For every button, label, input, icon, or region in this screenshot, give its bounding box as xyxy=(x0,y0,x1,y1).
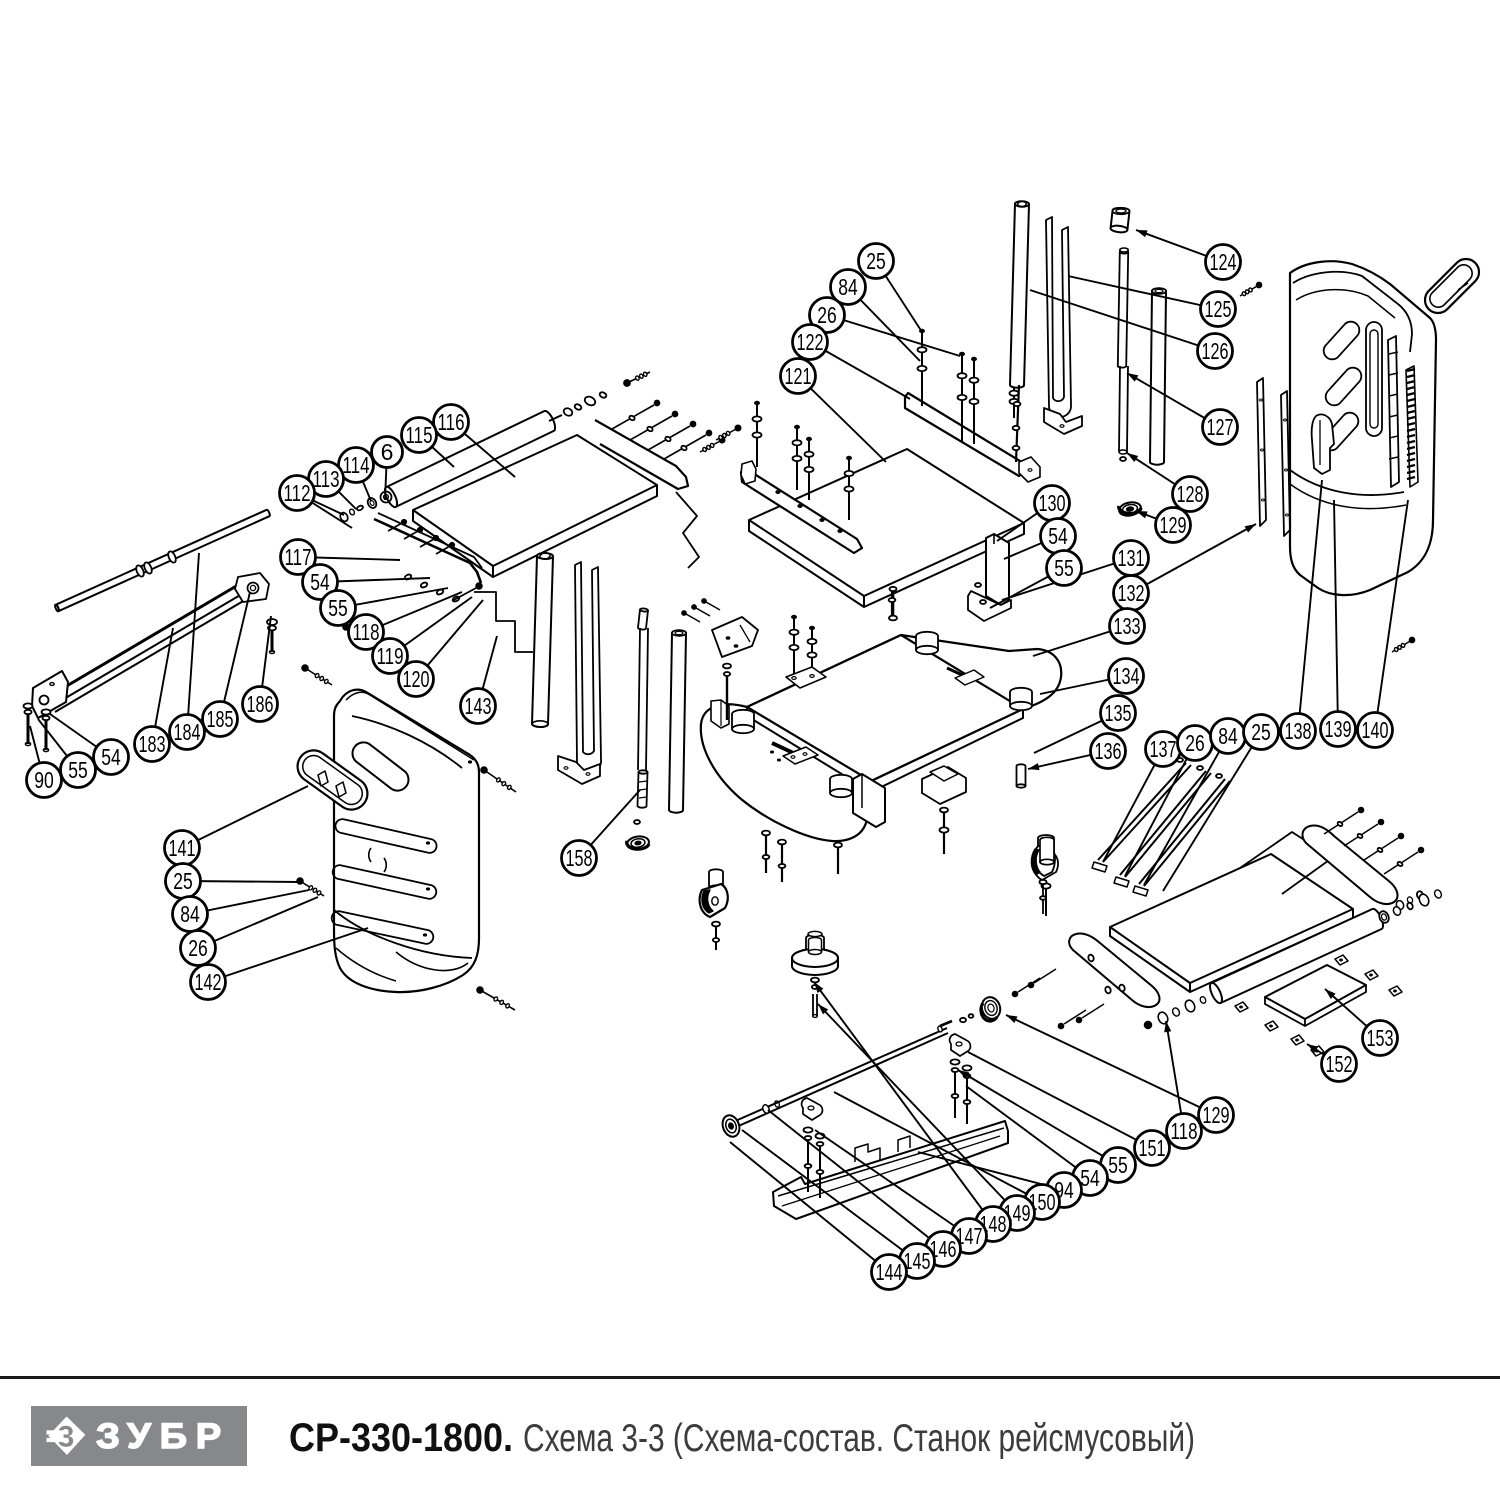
svg-text:144: 144 xyxy=(876,1259,903,1285)
svg-text:117: 117 xyxy=(285,544,312,570)
svg-text:125: 125 xyxy=(1205,296,1232,322)
svg-text:128: 128 xyxy=(1177,481,1204,507)
svg-text:114: 114 xyxy=(343,452,370,478)
svg-text:84: 84 xyxy=(180,901,200,927)
svg-text:90: 90 xyxy=(34,767,54,793)
svg-text:124: 124 xyxy=(1210,249,1237,275)
svg-text:132: 132 xyxy=(1118,580,1145,606)
svg-text:143: 143 xyxy=(465,693,492,719)
svg-text:140: 140 xyxy=(1362,717,1389,743)
svg-text:55: 55 xyxy=(328,595,348,621)
svg-text:115: 115 xyxy=(406,422,433,448)
svg-text:СР-330-1800.: СР-330-1800. xyxy=(289,1416,513,1460)
svg-text:131: 131 xyxy=(1118,545,1145,571)
svg-text:127: 127 xyxy=(1207,414,1234,440)
svg-text:129: 129 xyxy=(1203,1102,1230,1128)
svg-text:Схема 3-3 (Схема-состав. Стано: Схема 3-3 (Схема-состав. Станок рейсмусо… xyxy=(523,1417,1195,1460)
svg-text:26: 26 xyxy=(188,935,208,961)
svg-text:25: 25 xyxy=(1251,719,1271,745)
svg-text:26: 26 xyxy=(1185,730,1205,756)
svg-text:118: 118 xyxy=(1171,1118,1198,1144)
svg-text:133: 133 xyxy=(1114,613,1141,639)
svg-text:54: 54 xyxy=(310,569,330,595)
svg-text:186: 186 xyxy=(247,691,274,717)
svg-text:142: 142 xyxy=(195,969,222,995)
svg-text:54: 54 xyxy=(1048,523,1068,549)
svg-text:151: 151 xyxy=(1139,1135,1166,1161)
svg-text:137: 137 xyxy=(1150,736,1177,762)
svg-text:152: 152 xyxy=(1326,1051,1353,1077)
svg-text:118: 118 xyxy=(353,619,380,645)
svg-text:136: 136 xyxy=(1095,738,1122,764)
svg-text:119: 119 xyxy=(377,643,404,669)
svg-text:126: 126 xyxy=(1202,338,1229,364)
svg-text:141: 141 xyxy=(169,835,196,861)
svg-text:112: 112 xyxy=(284,480,311,506)
svg-text:130: 130 xyxy=(1039,490,1066,516)
svg-text:3: 3 xyxy=(58,1421,75,1454)
svg-text:ЗУБР: ЗУБР xyxy=(96,1417,230,1456)
svg-text:122: 122 xyxy=(797,329,824,355)
svg-text:116: 116 xyxy=(438,409,465,435)
svg-text:6: 6 xyxy=(381,439,394,465)
svg-text:84: 84 xyxy=(1218,723,1238,749)
svg-text:26: 26 xyxy=(817,302,837,328)
svg-text:183: 183 xyxy=(139,731,166,757)
svg-text:158: 158 xyxy=(566,845,593,871)
svg-text:153: 153 xyxy=(1367,1025,1394,1051)
svg-text:54: 54 xyxy=(101,744,121,770)
svg-text:185: 185 xyxy=(207,706,234,732)
svg-text:120: 120 xyxy=(403,666,430,692)
svg-text:184: 184 xyxy=(174,719,201,745)
svg-text:138: 138 xyxy=(1285,718,1312,744)
svg-text:134: 134 xyxy=(1113,663,1140,689)
svg-text:121: 121 xyxy=(785,363,812,389)
svg-text:54: 54 xyxy=(1080,1165,1100,1191)
svg-text:139: 139 xyxy=(1325,716,1352,742)
svg-text:55: 55 xyxy=(1108,1152,1128,1178)
svg-text:129: 129 xyxy=(1160,512,1187,538)
svg-text:55: 55 xyxy=(68,757,88,783)
svg-text:84: 84 xyxy=(838,274,858,300)
svg-text:113: 113 xyxy=(313,466,340,492)
svg-text:55: 55 xyxy=(1054,555,1074,581)
svg-text:25: 25 xyxy=(866,248,886,274)
svg-text:135: 135 xyxy=(1105,700,1132,726)
svg-text:25: 25 xyxy=(173,868,193,894)
